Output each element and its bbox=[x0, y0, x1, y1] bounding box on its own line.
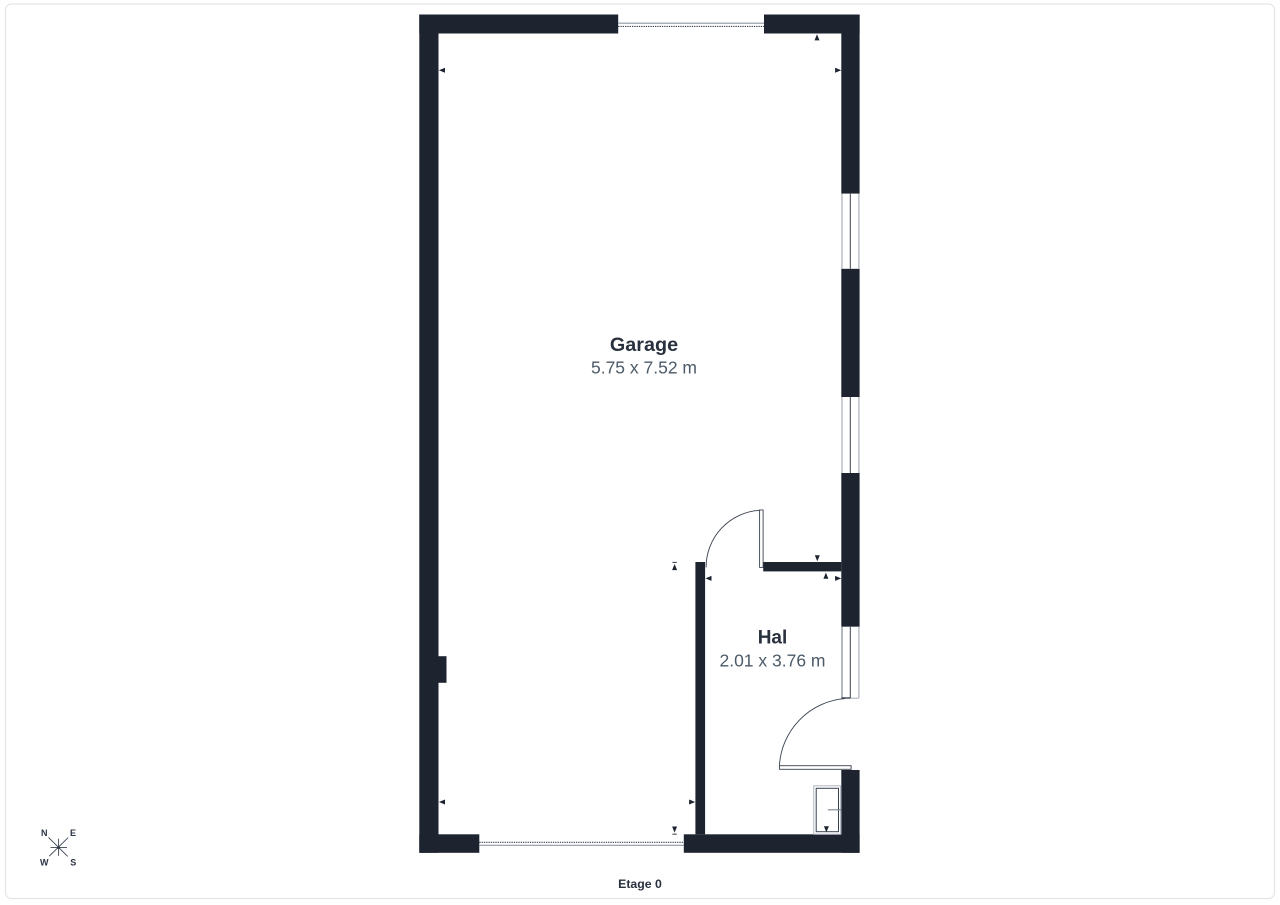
svg-text:Garage: Garage bbox=[610, 334, 678, 356]
svg-text:S: S bbox=[70, 857, 76, 867]
svg-text:E: E bbox=[70, 828, 76, 838]
svg-text:Etage 0: Etage 0 bbox=[618, 877, 662, 891]
svg-text:W: W bbox=[40, 857, 49, 867]
svg-text:2.01 x 3.76 m: 2.01 x 3.76 m bbox=[719, 650, 825, 670]
svg-text:5.75 x 7.52 m: 5.75 x 7.52 m bbox=[591, 358, 697, 378]
svg-text:N: N bbox=[41, 828, 48, 838]
svg-text:Hal: Hal bbox=[758, 628, 788, 649]
